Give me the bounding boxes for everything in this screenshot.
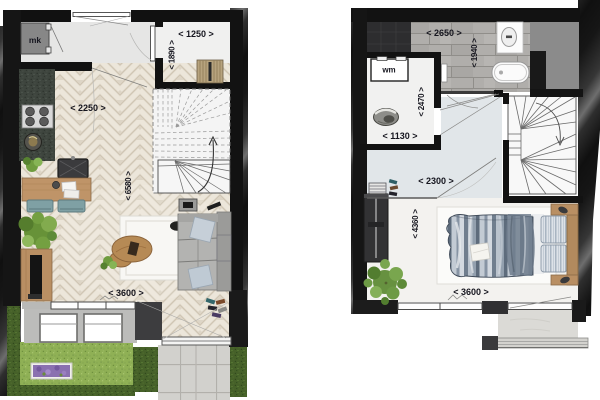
svg-text:mk: mk [29,35,42,45]
svg-text:< 3600 >: < 3600 > [108,288,144,298]
svg-text:wm: wm [381,66,395,75]
svg-text:< 2250 >: < 2250 > [70,103,106,113]
svg-text:< 2650 >: < 2650 > [426,28,462,38]
svg-text:< 1890 >: < 1890 > [168,40,177,70]
svg-text:< 6580 >: < 6580 > [124,171,133,201]
svg-text:< 1940 >: < 1940 > [470,38,479,68]
svg-text:< 4360 >: < 4360 > [411,209,420,239]
svg-text:< 2300 >: < 2300 > [418,176,454,186]
svg-text:< 3600 >: < 3600 > [453,287,489,297]
svg-text:< 2470 >: < 2470 > [417,87,426,117]
svg-text:< 1250 >: < 1250 > [178,29,214,39]
svg-text:< 1130 >: < 1130 > [382,131,417,141]
